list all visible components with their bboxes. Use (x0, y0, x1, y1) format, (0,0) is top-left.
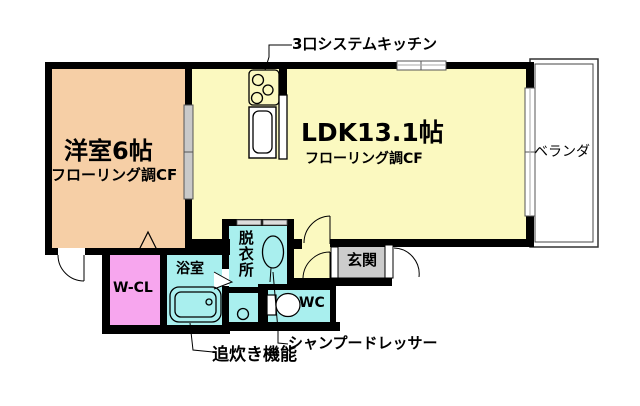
wall (293, 239, 302, 249)
wall (222, 322, 340, 331)
entrance-label: 玄関 (347, 253, 377, 269)
shampoo-annotation: シャンプードレッサー (288, 336, 438, 352)
wall (330, 239, 530, 247)
bathroom-label: 浴室 (176, 262, 204, 277)
kitchen-annotation: 3口システムキッチン (292, 37, 437, 53)
walk-in-closet-label: W-CL (113, 281, 153, 296)
front-door (385, 245, 393, 278)
door-arc-western (58, 255, 84, 281)
toilet-icon (267, 294, 300, 317)
floor-plan: 洋室6帖 フローリング調CF LDK13.1帖 フローリング調CF 3口システム… (0, 0, 640, 406)
kitchen-sink-icon (249, 107, 276, 158)
door-opening (58, 248, 85, 255)
reheat-annotation: 追炊き機能 (212, 347, 297, 365)
dressing-room-label: 脱衣所 (237, 230, 253, 278)
kitchen-counter-end (279, 95, 287, 159)
wall (293, 278, 392, 286)
room-laundry-nook (229, 293, 258, 322)
wall (222, 287, 262, 293)
kitchen-partition-wall (279, 69, 287, 95)
ldk-label: LDK13.1帖 (301, 120, 444, 146)
western-room-floor-label: フローリング調CF (51, 168, 177, 184)
western-room-label: 洋室6帖 (64, 139, 153, 164)
wall (45, 62, 52, 255)
wall (102, 325, 230, 334)
veranda-label: ベランダ (534, 145, 590, 160)
window-top (397, 61, 446, 70)
wc-label: WC (299, 296, 325, 311)
entrance-inner-door (331, 247, 338, 278)
sliding-door-western-ldk (184, 105, 193, 199)
ldk-floor-label: フローリング調CF (305, 152, 423, 167)
wall (102, 248, 110, 334)
wall (287, 219, 294, 284)
wall (160, 253, 167, 330)
door-arc-front (394, 248, 419, 277)
wall (45, 62, 534, 69)
